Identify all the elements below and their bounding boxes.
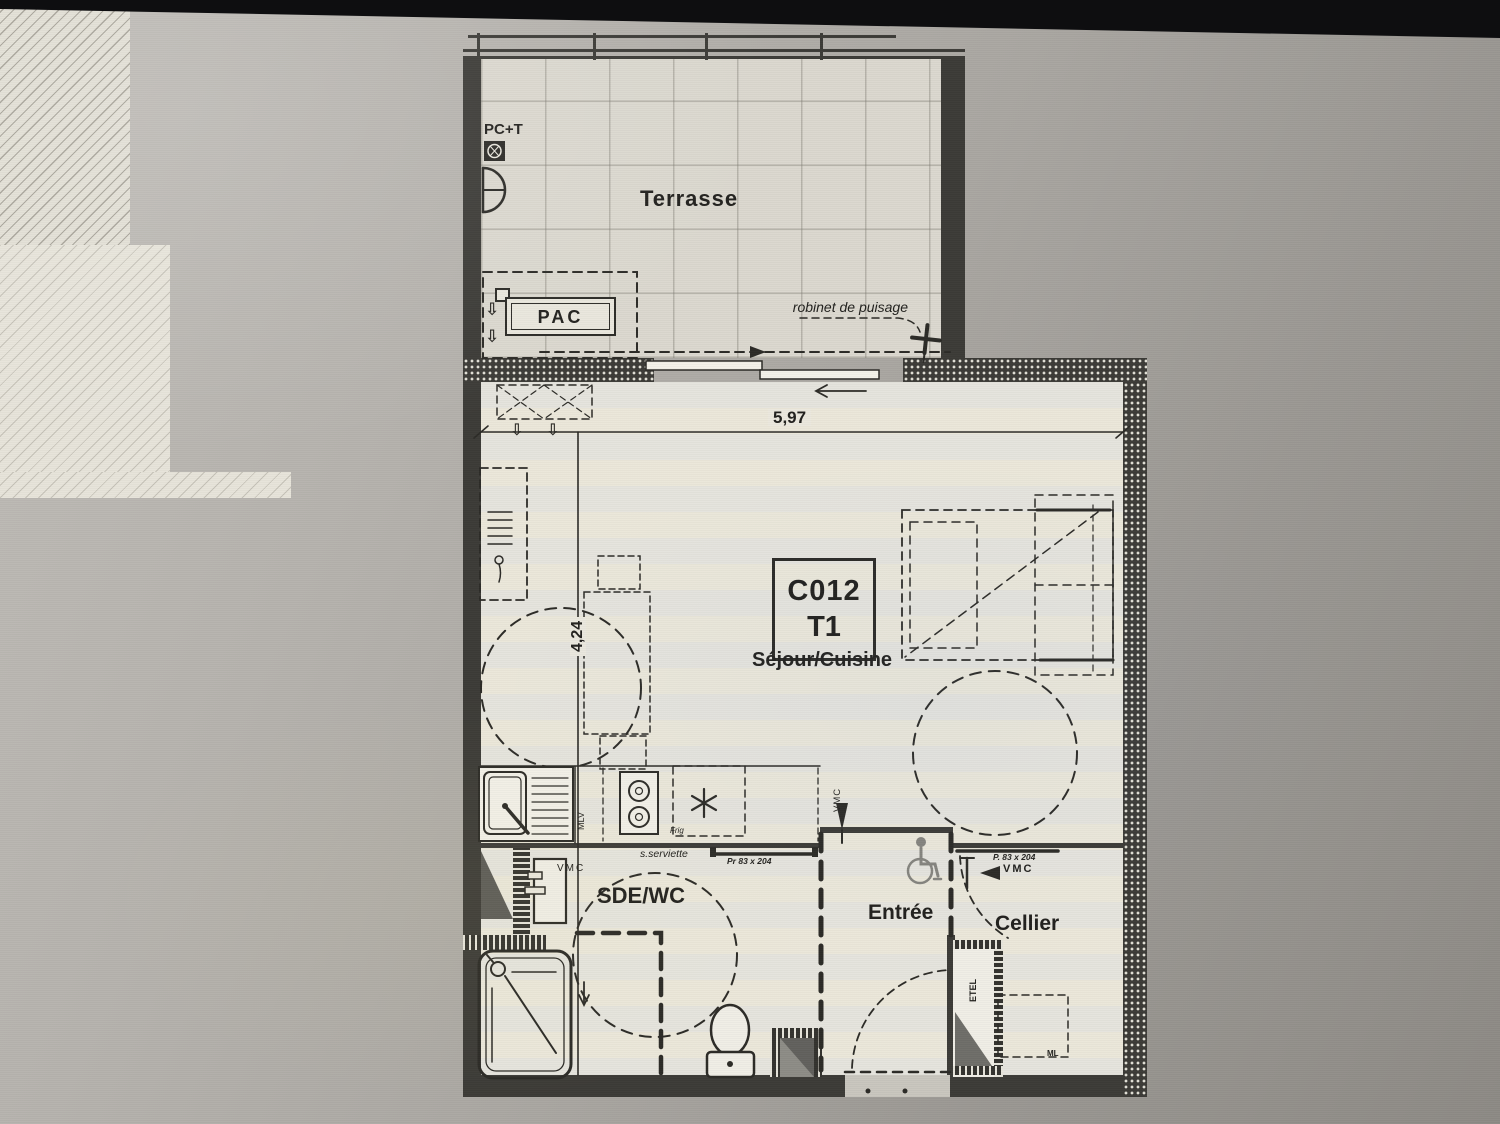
wheelchair-icon [908, 837, 941, 883]
unit-code: C012 [787, 577, 860, 606]
electrical-panel-label: ETEL [969, 979, 978, 1002]
dishwasher-label: MLV [577, 812, 586, 830]
unit-tag: C012 T1 [772, 558, 876, 661]
width-dimension: 5,97 [768, 409, 811, 426]
socket-icon [484, 141, 505, 161]
fridge-location-symbol [692, 789, 716, 817]
bathroom-label: SDE/WC [597, 885, 685, 907]
terrace-label: Terrasse [640, 188, 738, 210]
living-room-label: Séjour/Cuisine [752, 650, 892, 670]
outdoor-tap-label: robinet de puisage [790, 300, 908, 314]
duct-shade [481, 851, 513, 919]
vmc-duct-icon [980, 866, 1000, 880]
floorplan-photo: Terrasse PC+T PAC ⇩ ⇩ ⇩ ⇩ robinet de pui… [0, 0, 1500, 1124]
shower-icon [479, 951, 571, 1078]
plan-linework [0, 0, 1500, 1124]
towel-rail-label: s.serviette [640, 849, 688, 860]
wall-light-icon [483, 168, 505, 212]
heat-pump-label: PAC [538, 308, 584, 326]
vmc-label-storage: VMC [1003, 864, 1033, 875]
sink-icon [479, 767, 573, 841]
bathroom-door-label: Pr 83 x 204 [727, 857, 771, 866]
washer-label: ML [1047, 1050, 1059, 1058]
fridge-label: Frig [670, 827, 684, 835]
toilet-icon [707, 1005, 754, 1077]
storage-label: Cellier [995, 913, 1059, 934]
unit-type: T1 [807, 613, 841, 642]
depth-dimension: 4,24 [570, 617, 586, 656]
socket-label: PC+T [484, 122, 523, 137]
outdoor-tap-icon [910, 324, 942, 364]
airflow-arrow-icon: ⇩ [485, 300, 499, 320]
heat-pump-box: PAC [505, 297, 616, 336]
airflow-arrow-icon: ⇩ [546, 420, 559, 439]
vmc-label-bathroom: VMC [557, 864, 585, 874]
vmc-label-living: VMC [833, 788, 843, 812]
airflow-arrow-icon: ⇩ [510, 420, 523, 439]
airflow-arrow-icon: ⇩ [485, 327, 499, 347]
storage-door-label: P. 83 x 204 [993, 853, 1035, 862]
entry-label: Entrée [868, 902, 933, 923]
